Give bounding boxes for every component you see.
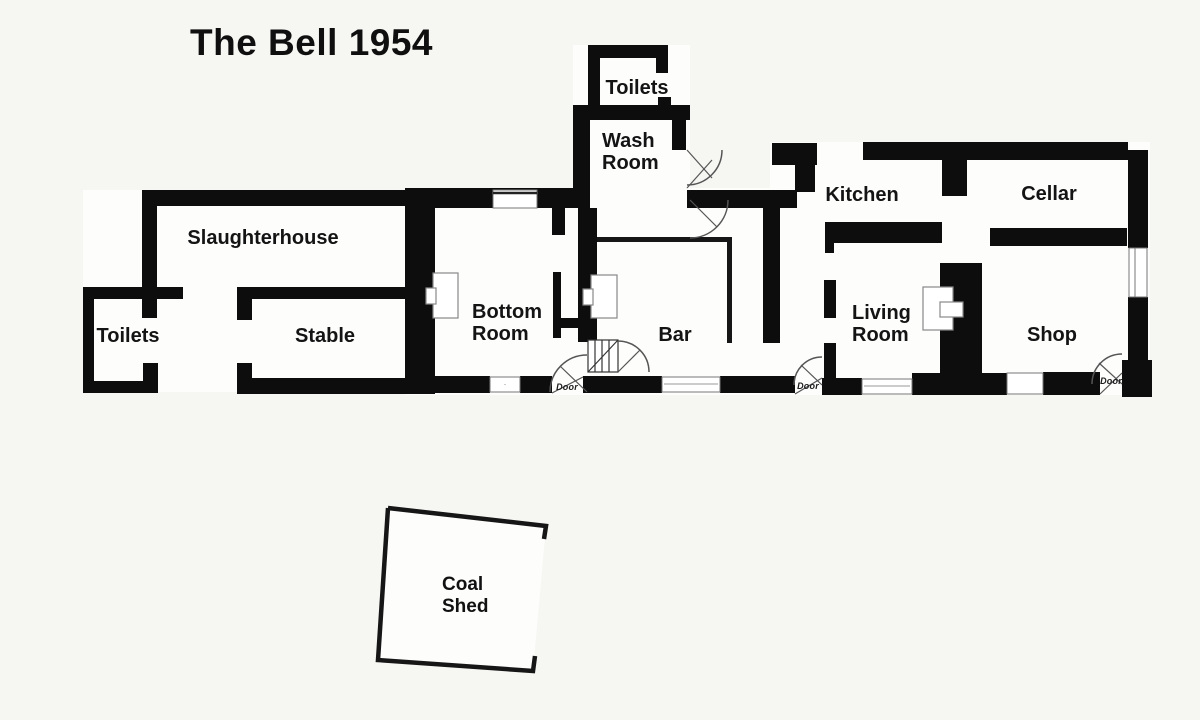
window-icon <box>1007 373 1043 394</box>
room-label-stable: Stable <box>295 325 355 347</box>
door-label: Door <box>797 381 819 391</box>
room-label-cellar: Cellar <box>1021 183 1077 205</box>
floorplan-canvas: The Bell 1954 Slaughterhouse Toilets Sta… <box>0 0 1200 720</box>
page-title: The Bell 1954 <box>190 22 433 64</box>
room-label-slaughterhouse: Slaughterhouse <box>187 227 338 249</box>
room-label-wash-room: Wash Room <box>602 130 659 174</box>
window-icon <box>493 190 537 208</box>
door-label: Door <box>556 382 578 392</box>
room-label-shop: Shop <box>1027 324 1077 346</box>
door-label: Door <box>1100 376 1122 386</box>
window-icon <box>1129 248 1147 297</box>
room-label-kitchen: Kitchen <box>825 184 898 206</box>
room-label-toilets-left: Toilets <box>97 325 160 347</box>
floorplan-drawing <box>0 0 1200 720</box>
room-label-bar: Bar <box>658 324 691 346</box>
room-label-living-room: Living Room <box>852 302 911 346</box>
stairs-icon <box>588 340 618 372</box>
room-label-bottom-room: Bottom Room <box>472 301 542 345</box>
room-label-coal-shed: Coal Shed <box>442 574 488 618</box>
room-label-toilets-top: Toilets <box>606 77 669 99</box>
